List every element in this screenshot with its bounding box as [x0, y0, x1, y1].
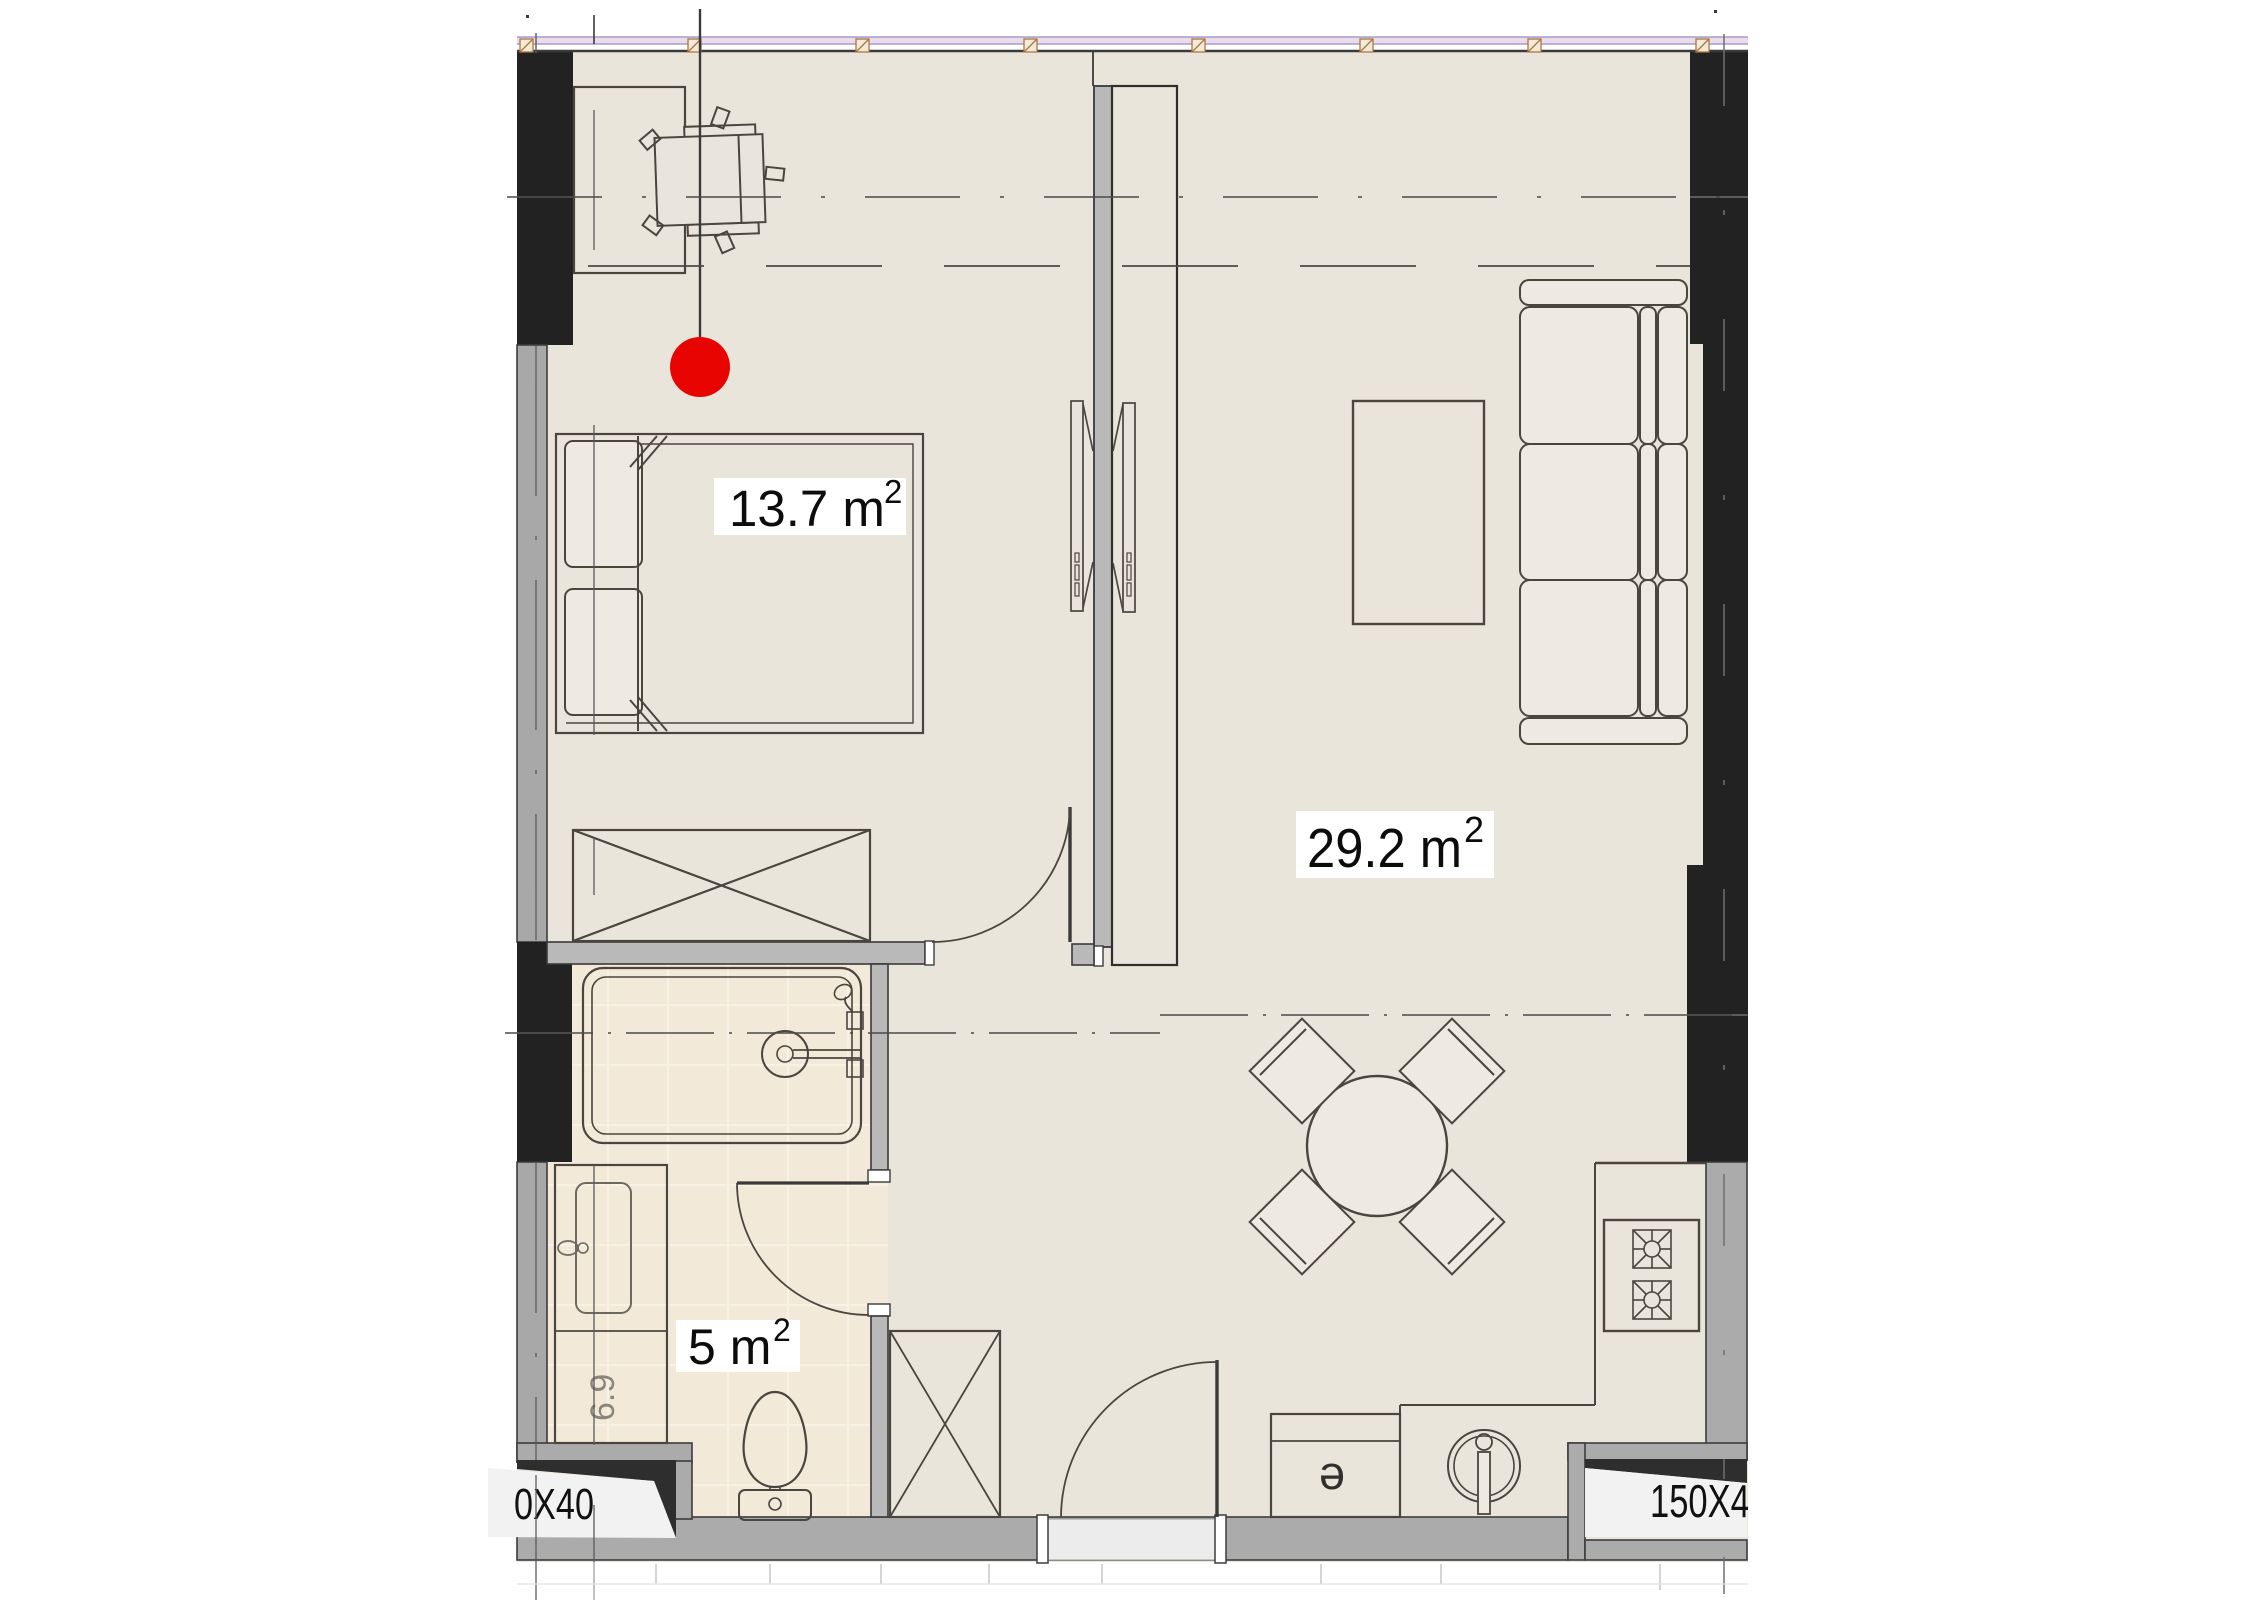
svg-text:5 m: 5 m: [688, 1319, 771, 1375]
svg-text:2: 2: [1464, 809, 1484, 850]
svg-text:0X40: 0X40: [514, 1480, 594, 1529]
svg-text:13.7 m: 13.7 m: [729, 480, 885, 537]
svg-text:ə: ə: [1319, 1446, 1345, 1499]
svg-text:29.2 m: 29.2 m: [1307, 817, 1462, 879]
svg-text:2: 2: [773, 1312, 791, 1348]
svg-text:2: 2: [884, 473, 902, 510]
svg-text:6.9: 6.9: [584, 1374, 622, 1421]
